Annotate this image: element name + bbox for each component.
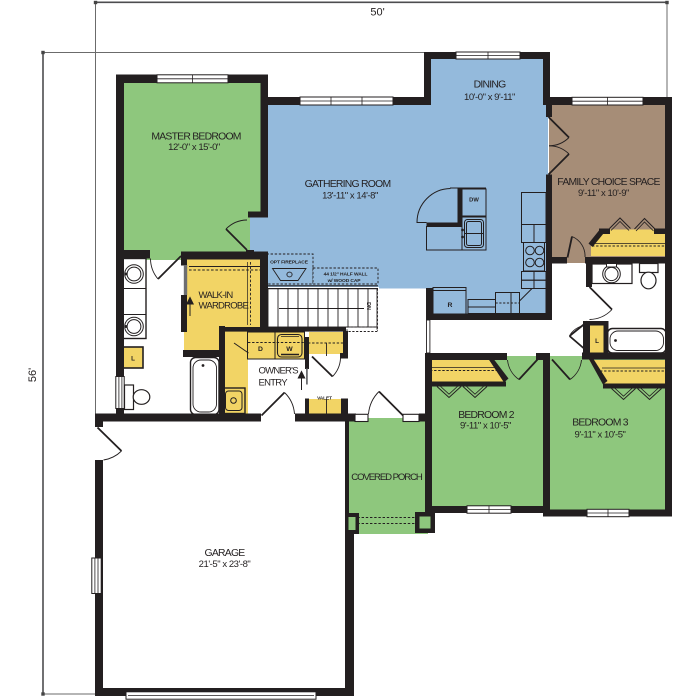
svg-text:DW: DW: [469, 198, 479, 204]
svg-text:44 1/2" HALF WALL: 44 1/2" HALF WALL: [324, 272, 368, 278]
svg-text:OPT FIREPLACE: OPT FIREPLACE: [270, 260, 309, 266]
svg-text:R: R: [448, 302, 453, 309]
svg-text:9'-11" x 10'-9": 9'-11" x 10'-9": [578, 188, 629, 199]
svg-text:COVERED PORCH: COVERED PORCH: [351, 472, 423, 483]
svg-text:56': 56': [27, 368, 39, 382]
svg-text:ENTRY: ENTRY: [259, 378, 289, 389]
svg-text:50': 50': [370, 7, 384, 19]
svg-text:GATHERING ROOM: GATHERING ROOM: [305, 179, 391, 190]
svg-text:21'-5" x 23'-8": 21'-5" x 23'-8": [199, 559, 251, 570]
svg-text:L: L: [131, 356, 135, 363]
svg-text:W: W: [286, 346, 293, 353]
svg-text:DN: DN: [365, 302, 371, 310]
svg-text:9'-11" x 10'-5": 9'-11" x 10'-5": [575, 430, 626, 441]
svg-text:13'-11" x 14'-8": 13'-11" x 14'-8": [322, 191, 378, 202]
svg-text:L: L: [595, 338, 599, 345]
svg-text:BEDROOM 3: BEDROOM 3: [572, 418, 629, 429]
svg-text:OWNER'S: OWNER'S: [259, 366, 299, 377]
svg-text:BEDROOM 2: BEDROOM 2: [458, 410, 515, 421]
svg-text:9'-11" x 10'-5": 9'-11" x 10'-5": [460, 421, 511, 432]
svg-text:12'-0" x 15'-0": 12'-0" x 15'-0": [168, 142, 220, 153]
svg-text:WARDROBE: WARDROBE: [199, 301, 249, 312]
svg-text:DINING: DINING: [474, 80, 507, 91]
svg-text:FAMILY CHOICE SPACE: FAMILY CHOICE SPACE: [557, 177, 660, 188]
svg-text:D: D: [258, 346, 263, 353]
svg-text:MASTER BEDROOM: MASTER BEDROOM: [151, 132, 240, 143]
svg-text:10'-0" x 9'-11": 10'-0" x 9'-11": [464, 92, 515, 103]
svg-text:WALK-IN: WALK-IN: [199, 290, 234, 301]
svg-text:VALET: VALET: [317, 396, 332, 402]
svg-text:w/ WOOD CAP: w/ WOOD CAP: [327, 278, 362, 284]
svg-text:GARAGE: GARAGE: [205, 548, 246, 559]
